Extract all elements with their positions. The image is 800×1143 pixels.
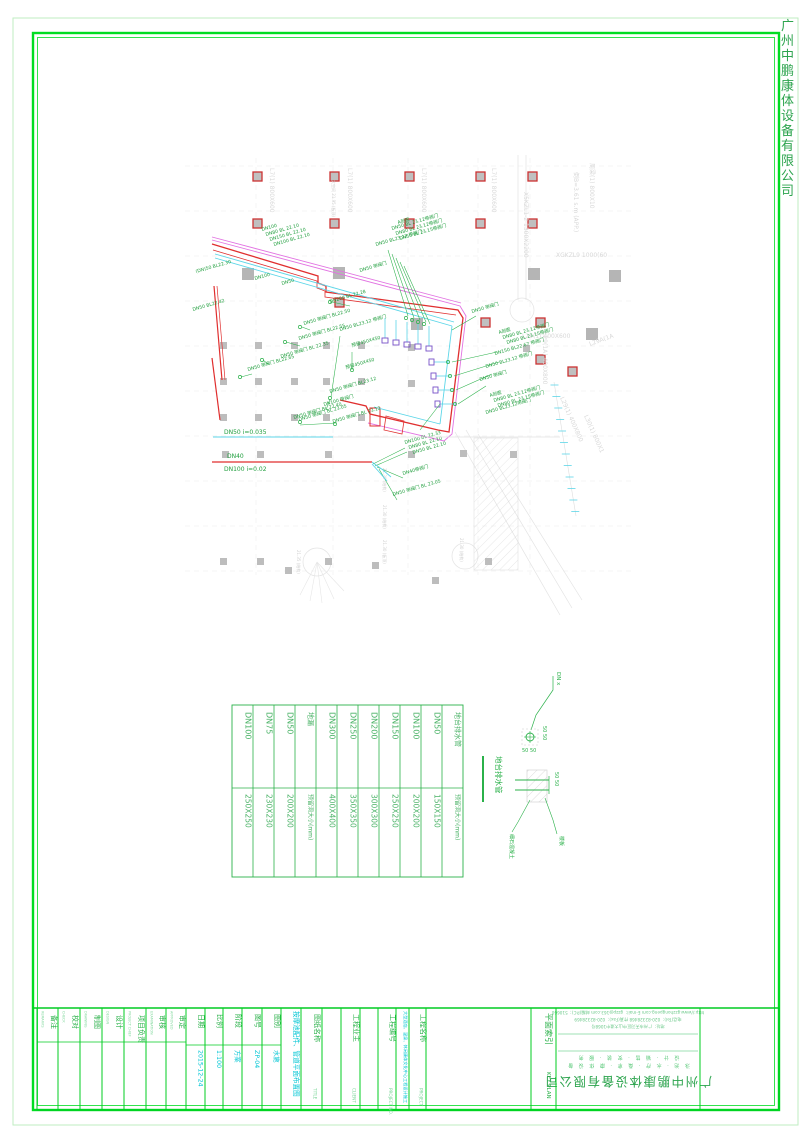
drawing-sheet: 广州中鹏康体设备有限公司 L7(1) 800X600L7(1) 800X600L… [0,0,800,1143]
detail-dim-2: 50 50 [522,748,536,754]
floor-plan: L7(1) 800X600L7(1) 800X600L7(1) 800X600L… [185,155,635,615]
column-small [460,450,467,457]
column-small [408,344,415,351]
detail-title: 地台排水管 [494,756,504,794]
column-small [432,577,439,584]
table-cell: 150X150 [433,794,442,828]
beam-label: 周梁(1) 800X10 [588,163,596,209]
table-cell: DN300 [328,712,337,739]
annotation-text: DN50 带阀门 BL23.12 [329,375,378,395]
leader-line [420,404,440,430]
block-label-en: PROJECT NO. [388,1088,393,1115]
column-gray [242,268,254,280]
column-marker [253,219,262,228]
leader-line [452,316,476,330]
table-cell: 350X350 [349,794,358,828]
value-col-value: 2015-12-24 [197,1050,204,1087]
project-name-value: 大型酒店、温泉、休闲康体文化中心工程设计施工 [402,1011,409,1103]
dim-label: 21.35 (结构) [296,550,302,574]
column-marker [330,219,339,228]
column-marker [528,172,537,181]
table-cell: 预留洞大小(mm) [454,794,462,840]
column-small [325,451,332,458]
column-small [220,558,227,565]
drawing-title: 按摩池配件、管道平面布置图 [292,1011,301,1097]
table-cell: DN50 [286,712,295,734]
table-cell: 300X300 [370,794,379,828]
annotation-text: 预留450X450 [351,334,382,349]
pipe-label-dn40: DN40 [227,453,244,460]
column-gray [411,318,423,330]
company-addr: 地址：广州市天河区中山大道中1068号 [591,1023,664,1030]
sig-col-en: PROJECT CHIEF [128,1011,132,1037]
keyplan-label: 平面索引 [544,1013,554,1045]
annotation-text: DN50 BL23.12 带阀门 [339,313,388,333]
detail-dn-label: DN x [555,672,561,686]
table-cell: DN100 [244,712,253,739]
leader-line [458,386,486,404]
column-small [255,414,262,421]
beam-label: L7(1) 800X600 [268,168,275,213]
company-tel: 电话(Tel)：020-82328468 传真(Fax)：020-8232846… [574,1016,682,1023]
annotation-text: DN50 带阀门 BL22.65 [247,353,296,373]
company-web: http://www.gzzhongpeng.com E-mail：gzzp@1… [551,1009,704,1016]
block-label-en: CLIENT [352,1088,357,1103]
sig-col-en: CHECK [62,1011,66,1023]
leader-line [241,374,252,377]
value-col-value: 1:100 [215,1050,222,1068]
value-col-label: 图号 [254,1014,262,1028]
sig-col-en: EXAMINATION [150,1011,154,1035]
column-gray [528,268,540,280]
column-small [220,342,227,349]
sig-col-en: APPROVED [170,1011,174,1030]
floor-drain [298,325,301,328]
block-label: 图纸名称 [313,1014,322,1042]
table-cell: 200X200 [412,794,421,828]
annotation-text: DN50 BL22.42 [192,298,226,313]
sig-col-label: 设计 [115,1015,124,1029]
table-cell: DN150 [391,712,400,739]
value-col-value: ZP-04 [253,1050,260,1068]
table-cell: DN50 [433,712,442,734]
value-col-value: 水施 [273,1050,282,1063]
column-small [220,414,227,421]
annotation-text: DN50 带阀门 BL 23.05 [392,477,442,497]
pipe-label-dn50: DN50 i=0.035 [224,429,267,436]
block-label-en: PROJECT [419,1088,424,1107]
table-cell: DN200 [370,712,379,739]
table-cell: 地台排水管 [454,712,463,747]
column-small [291,342,298,349]
beam-label: L7(1) 800X600 [490,168,497,213]
leader-line [400,262,426,322]
column-marker [476,172,485,181]
sig-col-label: 校对 [71,1015,80,1029]
sig-col-en: DESIGN [106,1011,110,1025]
sig-col-en: REMARKS [41,1011,45,1027]
table-cell: 预留洞大小(mm) [307,794,315,840]
annotation-text: 预留450X450 [345,356,376,371]
table-cell: DN250 [349,712,358,739]
jet [426,346,432,351]
block-label: 工程名称 [419,1014,428,1042]
leader-line [373,448,405,464]
annotation-text: DN50 带阀门 [479,368,508,383]
floor-drain-detail: 地台排水管 DN x 50 50 50 50 50 50 细石混凝土 楼板 [483,672,565,859]
column-small [220,378,227,385]
company-scope-1: 泳 池 · 水 疗 · 桑 拿 · 康 体 设 备 [566,1062,690,1069]
jet [435,401,440,407]
table-cell: 200X200 [286,794,295,828]
annotation-text: DN50 带阀门 [471,300,500,315]
annotation-text: DN40带阀门 [402,463,430,477]
detail-material-label: 细石混凝土 [508,834,515,859]
value-col-value: 方案 [234,1050,243,1063]
column-small [372,562,379,569]
column-small [255,378,262,385]
jet [433,387,438,393]
preset-hole-table: DN100250X250DN75230X230DN50200X200地漏预留洞大… [232,705,463,877]
column-marker [476,219,485,228]
table-cell: 230X230 [265,794,274,828]
column-small [291,378,298,385]
beam-label: L7(1) 800X600 [420,168,427,213]
column-small [325,558,332,565]
dim-label: 21.30 (板顶) [382,540,388,564]
column-marker [405,172,414,181]
sig-col-label: 制图 [93,1015,102,1029]
jet [431,373,436,379]
leader-line [300,423,336,425]
leader-line [302,327,310,330]
column-marker [481,318,490,327]
value-col-label: 日期 [197,1014,205,1028]
block-label-en: TITLE [313,1087,318,1100]
column-small [510,451,517,458]
beam-label: X5KZL1-2 1300X2200 [522,192,529,258]
annotation-text: DN50 带阀门 [359,259,388,274]
beam-label: XGKZL9 1000(60 [556,252,607,259]
column-small [408,380,415,387]
annotation-text: (DN)50 BL22.30 [195,259,232,275]
jet [393,340,399,345]
jet [429,359,434,365]
detail-slab-label: 楼板 [558,836,565,846]
column-small [323,378,330,385]
column-small [285,567,292,574]
company-block: 广州中鹏康体设备有限公司 泳 池 · 水 疗 · 桑 拿 · 康 体 设 备 设… [544,1009,712,1089]
company-scope-2: 设 计 · 销 售 · 安 装 · 服 务 [577,1054,680,1061]
column-marker [568,367,577,376]
column-small [257,558,264,565]
table-cell: 250X250 [244,794,253,828]
jet [382,338,388,343]
table-cell: DN75 [265,712,274,734]
sig-col-label: 项目负责 [137,1015,146,1043]
beam-label: L30(1) 800X1 [582,414,605,454]
jet [415,344,421,349]
margin-company-name: 广州中鹏康体设备有限公司 [781,19,794,199]
leader-line [375,452,407,466]
sig-col-label: 备注 [50,1015,59,1029]
beam-label: 倒B=3.61 s.m (APP.) [572,172,580,232]
detail-dim-1: 50 50 [541,726,547,740]
column-marker [253,172,262,181]
detail-dim-3: 50 50 [553,772,559,786]
column-gray [609,270,621,282]
dim-label: 大空间 21.95 (板顶) [331,180,337,218]
column-small [485,558,492,565]
table-cell: 250X250 [391,794,400,828]
company-name: 广州中鹏康体设备有限公司 [544,1074,712,1089]
sig-col-en: DRAWING [84,1011,88,1028]
drawing-frame [13,18,798,1125]
column-small [255,342,262,349]
table-cell: 地漏 [307,712,316,726]
title-block: 按摩池配件、管道平面布置图 大型酒店、温泉、休闲康体文化中心工程设计施工 平面索… [33,1008,779,1115]
column-small [257,451,264,458]
table-cell: 400X400 [328,794,337,828]
pipe-label-dn100: DN100 i=0.02 [224,466,267,473]
floor-drain [404,316,407,319]
dim-label: 21.30 (结构) [459,538,465,562]
annotation-text: DN100 [254,272,271,282]
dim-label: 21.30 (结构) [382,505,388,529]
beam-label: L7(1) 800X600 [346,168,353,213]
table-cell: DN100 [412,712,421,739]
